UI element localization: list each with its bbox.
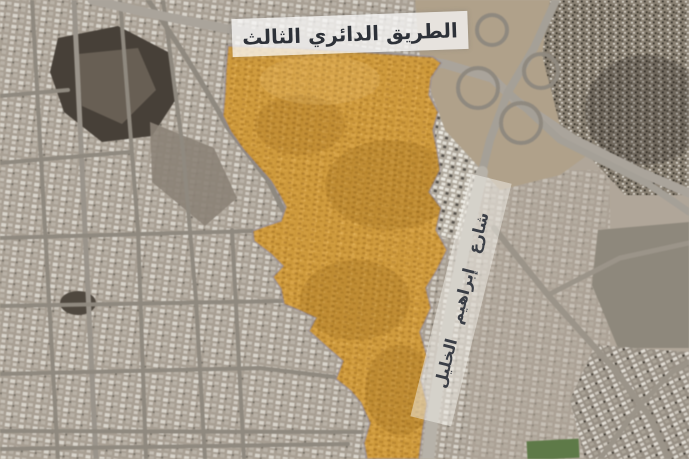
ring-road-label-text: الطريق الدائري الثالث (242, 18, 458, 50)
urban-rows-southeast (570, 345, 689, 459)
satellite-basemap (0, 0, 689, 459)
map-figure: الطريق الدائري الثالث شارع إبراهيم الخلي… (0, 0, 689, 459)
green-field (527, 439, 580, 459)
